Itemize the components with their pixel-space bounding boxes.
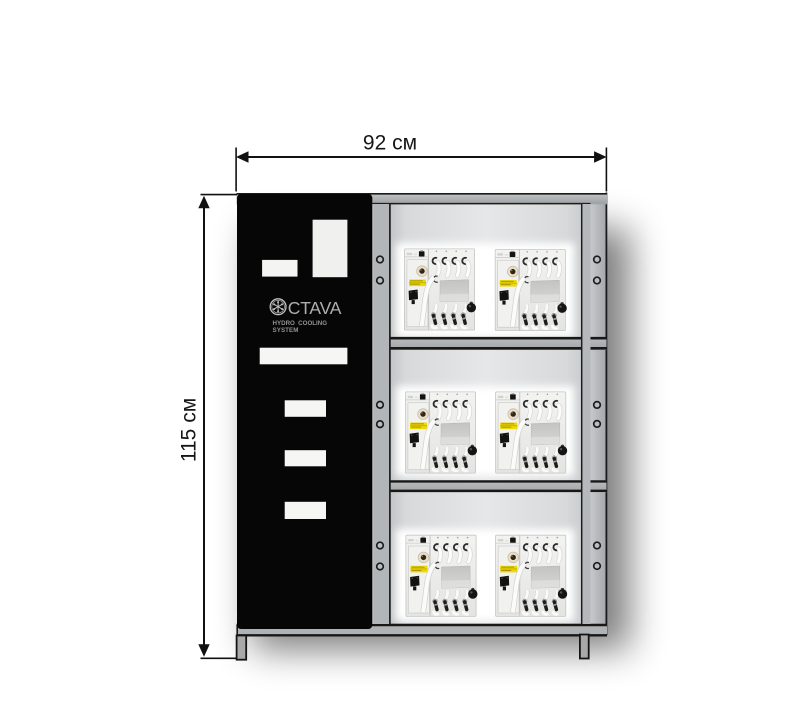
- svg-text:SYSTEM: SYSTEM: [273, 327, 299, 334]
- svg-text:92 см: 92 см: [363, 132, 417, 155]
- svg-text:CTAVA: CTAVA: [288, 298, 342, 318]
- svg-text:115 см: 115 см: [178, 398, 201, 462]
